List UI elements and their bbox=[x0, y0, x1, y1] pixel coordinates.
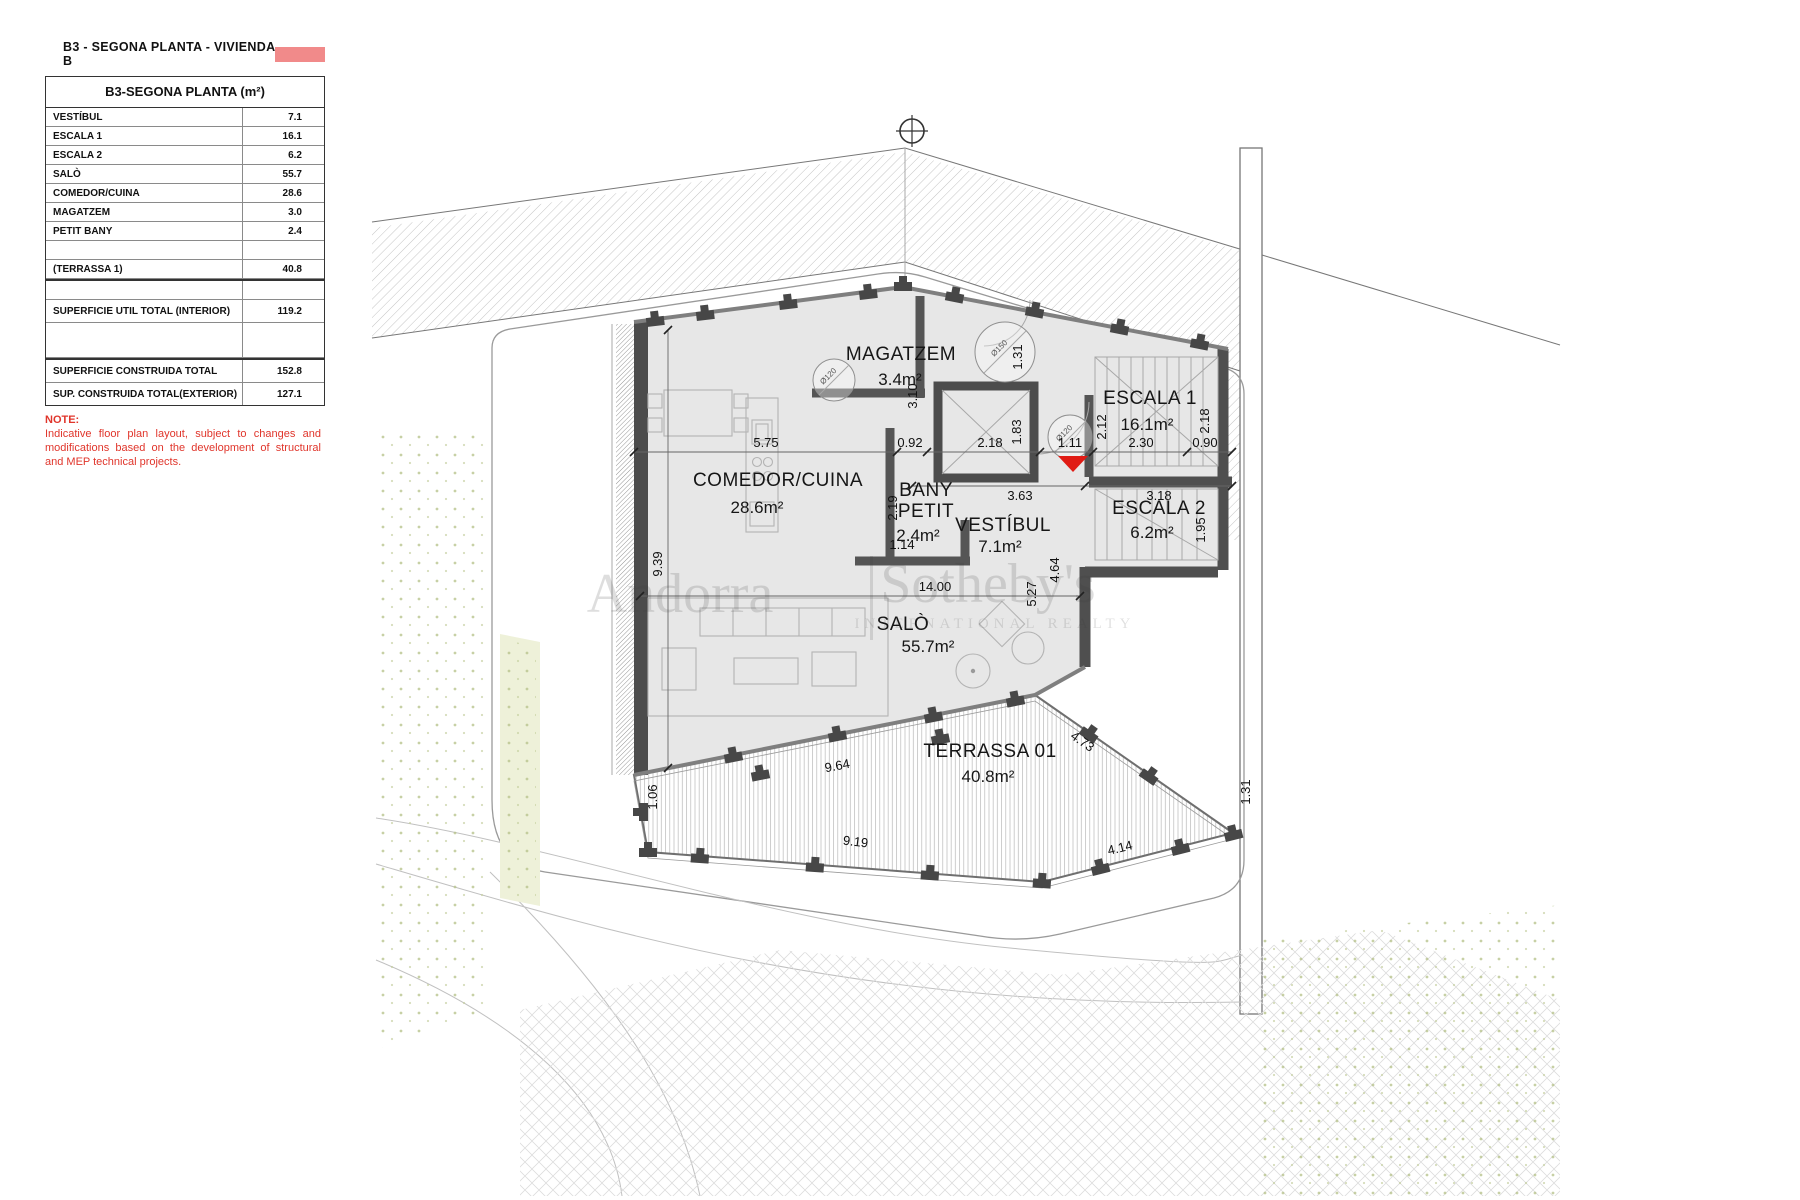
room-area-terrassa: 40.8m² bbox=[962, 767, 1015, 786]
site-boundary-line bbox=[1262, 255, 1560, 345]
room-label-vestibul: VESTÍBUL bbox=[955, 515, 1051, 536]
room-area-escala2: 6.2m² bbox=[1130, 523, 1174, 542]
watermark-andorra: Andorra bbox=[587, 563, 774, 625]
dim-label: 0.90 bbox=[1192, 435, 1217, 450]
dim-label: 3.63 bbox=[1007, 488, 1032, 503]
dim-label: 2.18 bbox=[1197, 408, 1212, 433]
watermark-sothebys: Sotheby's bbox=[880, 553, 1095, 615]
dim-label: 9.19 bbox=[842, 833, 869, 851]
dim-label: 2.30 bbox=[1128, 435, 1153, 450]
room-label-magatzem: MAGATZEM bbox=[846, 344, 956, 365]
floor-plan: Ø120 Ø150 Ø120 bbox=[0, 0, 1800, 1200]
dim-label: 0.92 bbox=[897, 435, 922, 450]
planting-area bbox=[1262, 905, 1560, 1196]
dim-label: 1.06 bbox=[645, 784, 660, 809]
lawn-strip-dots bbox=[504, 640, 536, 900]
retaining-wall bbox=[1240, 148, 1262, 1014]
wall-insulation bbox=[616, 324, 634, 775]
room-area-escala1: 16.1m² bbox=[1121, 415, 1174, 434]
room-label-bany2: PETIT bbox=[898, 501, 954, 522]
room-label-terrassa: TERRASSA 01 bbox=[923, 741, 1056, 762]
room-area-magatzem: 3.4m² bbox=[878, 370, 922, 389]
dim-label: 1.83 bbox=[1009, 419, 1024, 444]
room-area-comedor: 28.6m² bbox=[731, 498, 784, 517]
room-label-escala2: ESCALA 2 bbox=[1112, 498, 1206, 519]
room-label-comedor: COMEDOR/CUINA bbox=[693, 470, 863, 491]
dim-label: 1.95 bbox=[1193, 517, 1208, 542]
dim-label: 1.31 bbox=[1238, 779, 1253, 804]
room-area-vestibul: 7.1m² bbox=[978, 537, 1022, 556]
room-label-escala1: ESCALA 1 bbox=[1103, 388, 1197, 409]
room-label-bany: BANY bbox=[899, 480, 953, 501]
survey-point-icon bbox=[896, 115, 928, 147]
dim-label: 2.12 bbox=[1094, 414, 1109, 439]
dim-label: 2.18 bbox=[977, 435, 1002, 450]
dim-label: 5.75 bbox=[753, 435, 778, 450]
room-label-salo: SALÒ bbox=[877, 613, 930, 635]
dim-label: 1.11 bbox=[1058, 435, 1082, 450]
room-area-salo: 55.7m² bbox=[902, 637, 955, 656]
room-area-bany: 2.4m² bbox=[896, 526, 940, 545]
planting-area bbox=[376, 430, 486, 1050]
dim-label: 1.31 bbox=[1010, 344, 1025, 369]
